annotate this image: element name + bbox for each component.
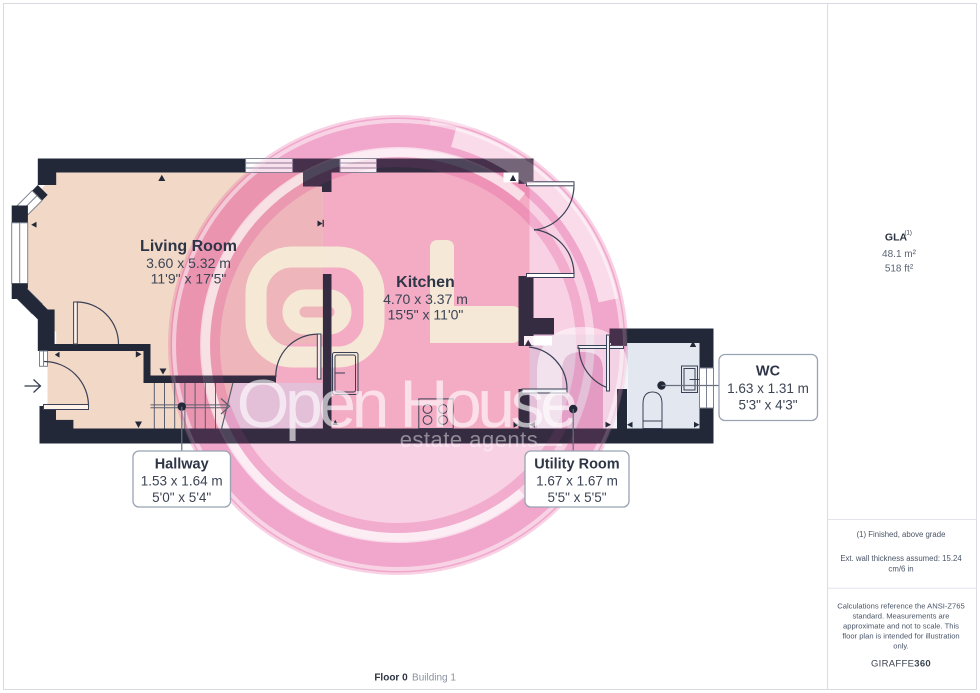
svg-text:Floor 0: Floor 0 <box>374 673 408 684</box>
svg-text:1.63 x 1.31 m: 1.63 x 1.31 m <box>727 381 809 396</box>
svg-text:Kitchen: Kitchen <box>396 274 455 291</box>
svg-text:Building 1: Building 1 <box>412 673 456 684</box>
svg-text:5'5" x 5'5": 5'5" x 5'5" <box>547 490 606 505</box>
svg-text:standard. Measurements are: standard. Measurements are <box>852 612 949 621</box>
svg-text:GIRAFFE360: GIRAFFE360 <box>871 659 931 670</box>
svg-text:15'5" x 11'0": 15'5" x 11'0" <box>388 307 464 323</box>
svg-text:only.: only. <box>893 642 908 651</box>
svg-text:11'9" x 17'5": 11'9" x 17'5" <box>151 271 227 287</box>
svg-text:floor plan is intended for ill: floor plan is intended for illustration <box>842 632 959 641</box>
svg-text:3.60 x 5.32 m: 3.60 x 5.32 m <box>146 255 231 271</box>
svg-text:(1) Finished, above grade: (1) Finished, above grade <box>857 530 946 539</box>
svg-text:approximate and not to scale.: approximate and not to scale. This <box>843 622 959 631</box>
svg-text:cm/6 in: cm/6 in <box>888 565 913 574</box>
svg-text:Utility Room: Utility Room <box>534 457 619 473</box>
svg-text:Calculations reference the ANS: Calculations reference the ANSI-Z765 <box>837 602 964 611</box>
svg-text:WC: WC <box>756 364 781 380</box>
svg-text:1.67 x 1.67 m: 1.67 x 1.67 m <box>536 474 618 489</box>
svg-text:5'3" x 4'3": 5'3" x 4'3" <box>738 398 797 413</box>
svg-text:Ext. wall thickness assumed: 1: Ext. wall thickness assumed: 15.24 <box>840 554 962 563</box>
svg-text:1.53 x 1.64 m: 1.53 x 1.64 m <box>141 474 223 489</box>
svg-text:(1): (1) <box>905 231 912 237</box>
svg-text:Living Room: Living Room <box>140 238 237 255</box>
svg-text:Hallway: Hallway <box>155 457 209 473</box>
svg-text:5'0" x 5'4": 5'0" x 5'4" <box>152 490 211 505</box>
svg-text:estate agents: estate agents <box>400 427 539 452</box>
svg-text:4.70 x 3.37 m: 4.70 x 3.37 m <box>383 291 468 307</box>
svg-text:518 ft²: 518 ft² <box>885 264 914 275</box>
svg-text:48.1 m²: 48.1 m² <box>882 249 917 260</box>
